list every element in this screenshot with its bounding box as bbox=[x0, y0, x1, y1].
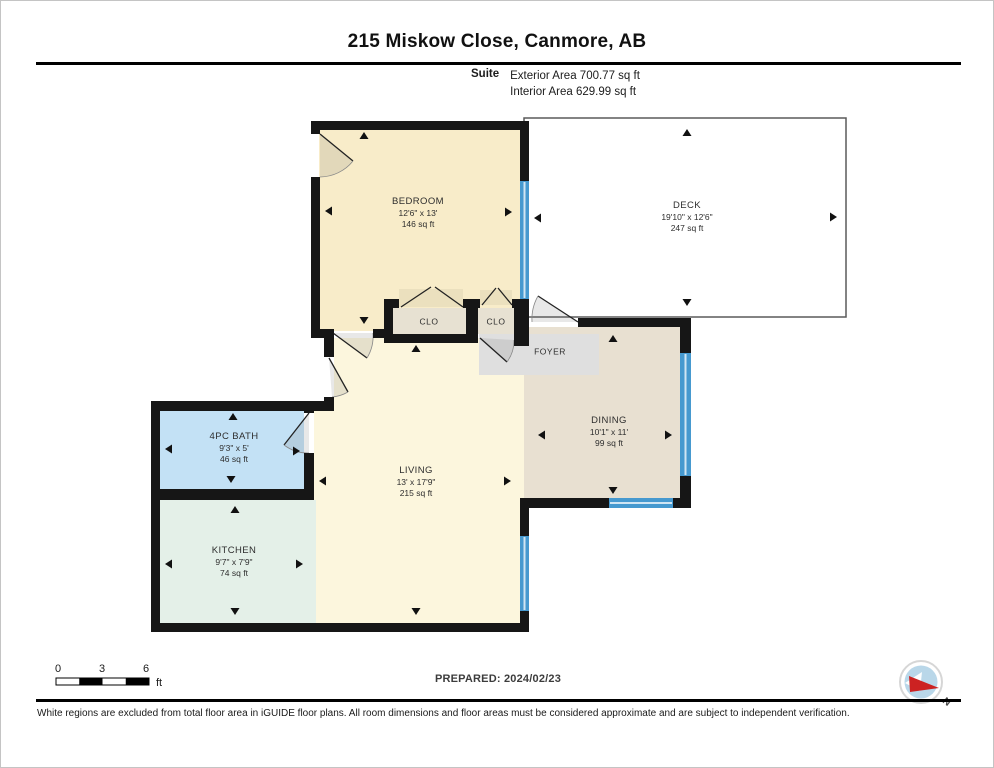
compass-n-label: N bbox=[940, 696, 952, 709]
scale-tick-0: 0 bbox=[55, 663, 61, 675]
scale-bar bbox=[56, 678, 149, 685]
kitchen-fill bbox=[160, 500, 316, 623]
closet1-fill bbox=[393, 308, 466, 334]
floorplan-canvas: N bbox=[1, 1, 994, 768]
scale-tick-6: 6 bbox=[143, 663, 149, 675]
scale-tick-3: 3 bbox=[99, 663, 105, 675]
deck-outline bbox=[524, 118, 846, 317]
living-fill-lower bbox=[314, 411, 524, 623]
bottom-divider bbox=[36, 699, 961, 702]
compass-north-icon: N bbox=[900, 661, 953, 709]
scale-unit: ft bbox=[156, 677, 162, 689]
prepared-date: PREPARED: 2024/02/23 bbox=[435, 673, 561, 685]
floorplan-page: 215 Miskow Close, Canmore, AB Suite Exte… bbox=[0, 0, 994, 768]
footer-disclaimer: White regions are excluded from total fl… bbox=[37, 708, 957, 719]
closet2-fill bbox=[478, 308, 514, 334]
